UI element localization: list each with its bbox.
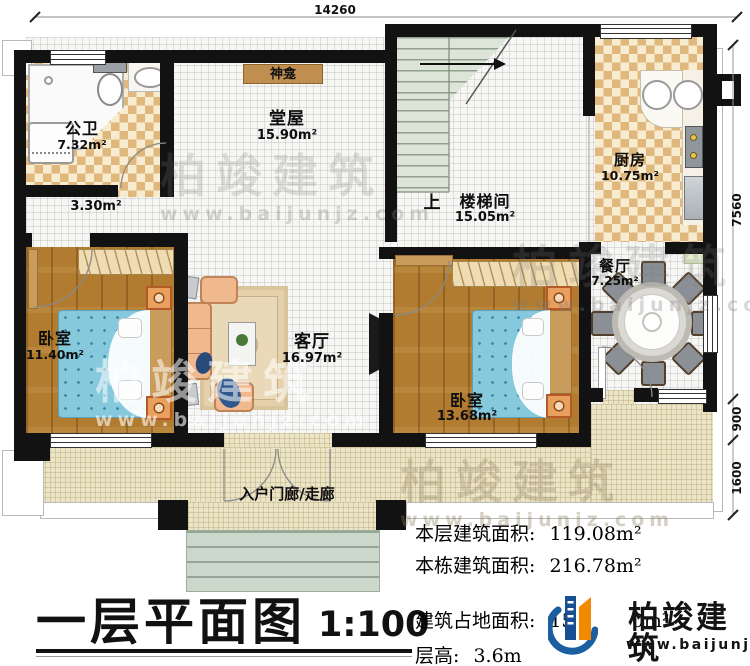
wall xyxy=(583,24,595,116)
brand-logo-icon xyxy=(548,594,598,658)
title-underline xyxy=(36,649,412,653)
dim-tick xyxy=(732,12,742,22)
stove-burner-icon xyxy=(690,134,697,141)
stat-floor-area: 本层建筑面积: 119.08m² xyxy=(415,519,642,546)
dining-table-center xyxy=(642,312,662,332)
armchair xyxy=(200,276,238,304)
table-plant-icon xyxy=(236,334,248,346)
stat-building-area: 本栋建筑面积: 216.78m² xyxy=(415,551,642,578)
stat-label: 建筑占地面积: xyxy=(415,610,535,632)
window xyxy=(50,433,152,448)
wall xyxy=(579,388,603,402)
wall xyxy=(14,233,32,247)
bedroom-left-door-leaf xyxy=(28,249,38,309)
brand-name: 柏竣建筑 xyxy=(628,603,750,665)
nightstand xyxy=(546,286,572,310)
dim-right-lower: 1600 xyxy=(730,453,744,503)
dim-top: 14260 xyxy=(295,3,375,17)
title-underline-thin xyxy=(36,656,412,657)
wall xyxy=(379,247,393,259)
dim-right-mid: 900 xyxy=(730,394,744,444)
floor-porch-doorway xyxy=(224,433,332,447)
room-area: 11.40m² xyxy=(0,348,110,362)
window xyxy=(50,50,106,65)
washing-machine-detail xyxy=(32,152,70,154)
porch-pillar xyxy=(376,500,406,530)
stairs-lower-flight xyxy=(397,99,449,192)
dim-tick xyxy=(30,12,40,22)
room-area: 7.32m² xyxy=(32,138,132,152)
shower-drain-icon xyxy=(44,76,53,85)
room-area: 15.05m² xyxy=(440,211,530,226)
room-label-hall: 堂屋 15.90m² xyxy=(237,110,337,144)
room-label-living: 客厅 16.97m² xyxy=(262,333,362,367)
wall xyxy=(174,233,188,447)
shrine: 神龛 xyxy=(243,64,323,84)
wall xyxy=(14,50,26,447)
porch-edge-right xyxy=(406,502,714,519)
room-name: 公卫 xyxy=(32,120,132,138)
stat-label: 本层建筑面积: xyxy=(415,523,535,545)
stat-value: 216.78m² xyxy=(549,555,641,577)
room-label-porch: 入户门廊/走廊 xyxy=(207,486,367,503)
kitchen-sink-right xyxy=(673,80,703,110)
flue-box xyxy=(715,74,741,106)
floor-porch-landing xyxy=(188,502,376,530)
room-area: 10.75m² xyxy=(575,169,685,183)
room-label-dining: 餐厅 7.25m² xyxy=(575,258,655,288)
wall xyxy=(535,433,591,447)
wall xyxy=(385,63,397,242)
window xyxy=(658,389,707,404)
room-name: 餐厅 xyxy=(575,258,655,275)
wall xyxy=(634,388,658,402)
dim-tick xyxy=(728,40,738,50)
floor-plan-canvas: 神龛 柏竣建筑 www.baijunjz.com 柏竣建筑 www.baijun… xyxy=(0,0,750,666)
room-name: 客厅 xyxy=(262,333,362,352)
room-area: 13.68m² xyxy=(412,410,522,425)
entrance-steps xyxy=(186,530,380,592)
room-name: 卧室 xyxy=(412,392,522,410)
stat-label: 本栋建筑面积: xyxy=(415,555,535,577)
room-label-stairwell: 楼梯间 15.05m² xyxy=(440,193,530,225)
wardrobe xyxy=(78,249,174,275)
room-name: 楼梯间 xyxy=(440,193,530,211)
wall xyxy=(160,50,174,197)
bedroom-right-door-leaf xyxy=(395,255,453,266)
pillow xyxy=(118,380,142,400)
plan-title: 一层平面图 xyxy=(36,597,306,647)
wall xyxy=(665,242,717,254)
wardrobe xyxy=(452,261,580,287)
wall xyxy=(150,433,224,447)
floor-porch-dining-doorway xyxy=(603,390,634,404)
wall xyxy=(379,313,393,447)
plan-scale: 1:100 xyxy=(318,608,429,643)
bed-headboard xyxy=(548,310,572,394)
shrine-label: 神龛 xyxy=(270,67,296,82)
dim-tick xyxy=(728,510,738,520)
room-area: 15.90m² xyxy=(237,129,337,144)
brand-url: www.baijunjz.com xyxy=(626,638,750,652)
pillow xyxy=(522,318,544,336)
stat-label: 层高: xyxy=(415,645,459,666)
kitchen-appliance xyxy=(684,176,704,220)
floor-porch-right xyxy=(591,404,713,502)
room-area: 16.97m² xyxy=(262,352,362,367)
dining-chair xyxy=(641,361,666,386)
room-name: 厨房 xyxy=(575,152,685,169)
pillow xyxy=(118,318,142,338)
nightstand xyxy=(546,394,572,418)
wall xyxy=(385,24,397,63)
stat-value: 119.08m² xyxy=(549,523,641,545)
wall xyxy=(14,185,118,197)
kitchen-sink-left xyxy=(642,80,672,110)
room-label-corridor: 3.30m² xyxy=(46,200,146,215)
room-label-bathroom: 公卫 7.32m² xyxy=(32,120,132,152)
room-label-kitchen: 厨房 10.75m² xyxy=(575,152,685,183)
window xyxy=(600,24,692,39)
room-name: 卧室 xyxy=(0,330,110,348)
room-label-bedroom-right: 卧室 13.68m² xyxy=(412,392,522,424)
nightstand xyxy=(146,286,172,310)
stove-burner-icon xyxy=(690,152,697,159)
toilet-bowl xyxy=(97,73,123,106)
porch-edge-left xyxy=(40,502,160,519)
stove xyxy=(685,126,703,168)
stat-floor-height: 层高: 3.6m xyxy=(415,641,522,666)
room-name: 堂屋 xyxy=(237,110,337,129)
dim-right-upper: 7560 xyxy=(730,185,744,235)
stat-value: 3.6m xyxy=(473,645,521,666)
wall-pillar xyxy=(14,433,50,461)
nightstand xyxy=(146,396,172,420)
porch-pillar xyxy=(158,500,188,530)
window xyxy=(425,433,537,448)
room-label-bedroom-left: 卧室 11.40m² xyxy=(0,330,110,362)
pillow xyxy=(522,382,544,400)
window xyxy=(703,295,718,353)
wall xyxy=(332,433,425,447)
room-area: 7.25m² xyxy=(575,275,655,288)
